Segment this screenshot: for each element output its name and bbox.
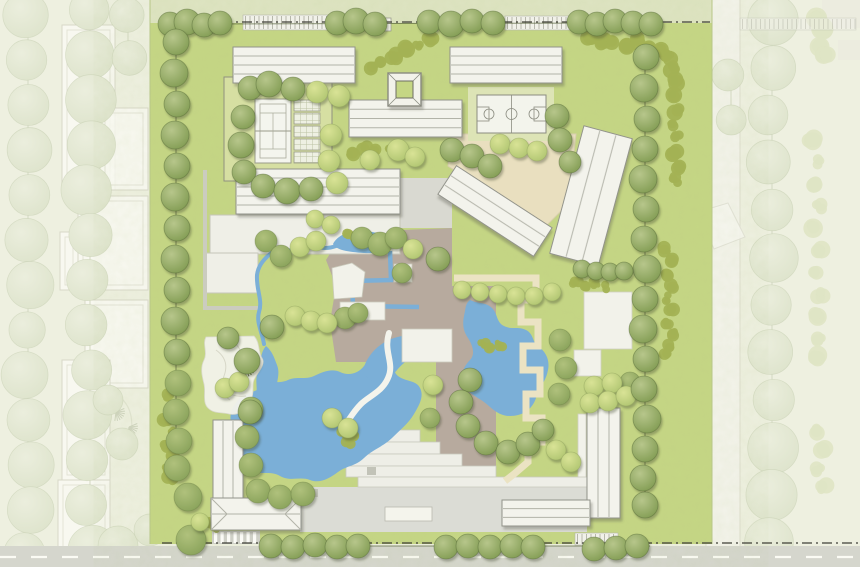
context-building	[838, 40, 860, 60]
tree	[164, 455, 190, 481]
tree	[246, 479, 270, 503]
tree	[604, 536, 628, 560]
tree	[458, 368, 482, 392]
ghost-tree	[712, 59, 744, 91]
ghost-tree	[751, 189, 793, 231]
tree	[360, 150, 380, 170]
tree	[270, 245, 292, 267]
ghost-tree	[748, 423, 799, 474]
tree	[582, 537, 606, 561]
shrub	[672, 105, 683, 116]
tree	[281, 535, 305, 559]
tree	[328, 85, 350, 107]
shrub	[659, 348, 671, 360]
tree	[163, 399, 189, 425]
tree	[238, 400, 262, 424]
ghost-tree	[750, 234, 799, 283]
pergola-trellis	[294, 152, 320, 163]
ghost-tree	[109, 0, 144, 32]
ghost-tree	[7, 261, 54, 308]
ghost-tree	[751, 46, 796, 91]
shrub	[668, 90, 677, 99]
tree	[580, 393, 600, 413]
tree	[478, 154, 502, 178]
shrub	[570, 277, 580, 287]
shrub	[814, 198, 827, 211]
tree	[633, 346, 659, 372]
ghost-tree	[112, 41, 147, 76]
shrub	[808, 351, 822, 365]
tree	[281, 77, 305, 101]
shrub	[667, 71, 683, 87]
tree	[348, 303, 368, 323]
tree	[633, 405, 661, 433]
shrub	[808, 307, 822, 321]
tree	[632, 286, 658, 312]
tree	[453, 281, 471, 299]
tree	[632, 136, 658, 162]
shrub	[674, 130, 683, 139]
tree	[228, 132, 254, 158]
ghost-tree	[8, 442, 54, 488]
building	[587, 408, 620, 518]
tree	[460, 9, 484, 33]
landscape-master-plan	[0, 0, 860, 567]
tree	[525, 287, 543, 305]
tree	[338, 418, 358, 438]
terrace-step	[358, 477, 587, 487]
tree	[317, 313, 337, 333]
shrub	[669, 171, 681, 183]
tree	[630, 74, 658, 102]
tree	[548, 128, 572, 152]
tree	[471, 283, 489, 301]
tree	[274, 178, 300, 204]
garden-pavilion	[388, 73, 421, 106]
tree	[490, 134, 510, 154]
tree	[632, 492, 658, 518]
ghost-tree	[748, 330, 793, 375]
tree	[160, 59, 188, 87]
tree	[615, 262, 633, 280]
shrub	[808, 266, 820, 278]
parking-strip	[740, 18, 856, 30]
tree	[521, 535, 545, 559]
tree	[639, 12, 663, 36]
ghost-tree	[5, 218, 48, 261]
tree	[161, 307, 189, 335]
tree	[405, 147, 425, 167]
tree	[481, 11, 505, 35]
ghost-tree	[1, 352, 48, 399]
ghost-tree	[61, 165, 111, 215]
shrub	[595, 282, 600, 287]
tree	[532, 419, 554, 441]
paved-pad	[332, 263, 365, 299]
tree	[417, 10, 441, 34]
shrub	[375, 56, 387, 68]
tree	[164, 215, 190, 241]
tree	[239, 453, 263, 477]
tree	[392, 263, 412, 283]
tree	[256, 71, 282, 97]
site-plan-svg	[0, 0, 860, 567]
tree	[489, 285, 507, 303]
tree	[559, 151, 581, 173]
shrub	[412, 41, 420, 49]
pergola-trellis	[294, 139, 320, 150]
shrub	[668, 119, 677, 128]
tree	[161, 183, 189, 211]
tree	[509, 138, 529, 158]
ghost-tree	[746, 140, 790, 184]
tree	[306, 210, 324, 228]
tree	[420, 408, 440, 428]
tree	[629, 165, 657, 193]
tree	[229, 372, 249, 392]
tree	[251, 174, 275, 198]
shrub	[664, 319, 674, 329]
shrub	[811, 332, 824, 345]
shrub	[664, 291, 672, 299]
tree	[163, 29, 189, 55]
plaza-bench	[385, 507, 432, 521]
tree	[166, 428, 192, 454]
shrub	[664, 278, 678, 292]
paved-pad	[402, 329, 452, 362]
road-bottom	[0, 546, 860, 567]
tree	[632, 436, 658, 462]
tree	[543, 283, 561, 301]
ghost-tree	[6, 40, 46, 80]
tree	[555, 357, 577, 379]
tree	[584, 376, 604, 396]
tree	[549, 329, 571, 351]
tree	[191, 513, 209, 531]
ghost-tree	[746, 469, 797, 520]
ghost-tree	[753, 379, 794, 420]
shrub	[607, 36, 617, 46]
pergola-trellis	[294, 126, 320, 137]
shrub	[816, 440, 833, 457]
tree	[434, 535, 458, 559]
tree	[561, 452, 581, 472]
tree	[478, 535, 502, 559]
shrub	[667, 329, 678, 340]
ghost-tree	[751, 285, 791, 325]
tree	[322, 216, 340, 234]
tree	[426, 247, 450, 271]
ghost-tree	[7, 399, 50, 442]
tree	[474, 431, 498, 455]
tree	[231, 105, 255, 129]
paved-pad	[584, 292, 632, 349]
tree	[500, 534, 524, 558]
ghost-tree	[8, 84, 49, 125]
podium-terrace	[206, 253, 258, 293]
shrub	[622, 42, 631, 51]
shrub	[666, 253, 679, 266]
tree	[299, 177, 323, 201]
tree	[291, 482, 315, 506]
tree	[633, 196, 659, 222]
tree	[629, 315, 657, 343]
ghost-tree	[7, 128, 52, 173]
tree	[260, 315, 284, 339]
shrub	[675, 163, 685, 173]
tree	[423, 375, 443, 395]
shrub	[805, 129, 823, 147]
building	[450, 47, 562, 83]
shrub	[663, 304, 675, 316]
tree	[303, 533, 327, 557]
shrub	[346, 151, 353, 158]
shrub	[484, 342, 495, 353]
ghost-tree	[66, 31, 114, 79]
tree	[259, 534, 283, 558]
tree	[164, 339, 190, 365]
tree	[306, 81, 328, 103]
shrub	[807, 177, 822, 192]
shrub	[494, 341, 504, 351]
tree	[208, 11, 232, 35]
tree	[165, 370, 191, 396]
tree	[320, 124, 342, 146]
tree	[456, 534, 480, 558]
tree	[449, 390, 473, 414]
tree	[268, 485, 292, 509]
tree	[545, 104, 569, 128]
shrub	[811, 466, 822, 477]
tree	[625, 534, 649, 558]
shrub	[818, 477, 834, 493]
ghost-tree	[67, 121, 115, 169]
tree	[363, 12, 387, 36]
ghost-tree	[9, 175, 50, 216]
ghost-tree	[69, 213, 112, 256]
tree	[548, 383, 570, 405]
tree	[630, 465, 656, 491]
ghost-tree	[66, 439, 108, 481]
shrub	[813, 154, 823, 164]
shrub	[602, 285, 607, 290]
ghost-tree	[65, 304, 107, 346]
shrub	[345, 439, 355, 449]
shrub	[665, 147, 680, 162]
shrub	[807, 221, 819, 233]
tree	[161, 245, 189, 273]
tree	[633, 44, 659, 70]
ghost-tree	[67, 259, 108, 300]
tree	[507, 287, 525, 305]
tree	[235, 425, 259, 449]
tree	[598, 391, 618, 411]
tree	[164, 153, 190, 179]
ghost-tree	[7, 487, 54, 534]
tree	[318, 150, 340, 172]
ghost-tree	[9, 312, 45, 348]
tree	[634, 106, 660, 132]
tree	[164, 91, 190, 117]
tree	[527, 141, 547, 161]
tree	[631, 376, 657, 402]
tree	[403, 239, 423, 259]
tree	[325, 535, 349, 559]
tree	[306, 231, 326, 251]
tree	[174, 483, 202, 511]
tree	[234, 348, 260, 374]
shrub	[811, 425, 823, 437]
tree	[217, 327, 239, 349]
tree	[346, 534, 370, 558]
ghost-tree	[66, 75, 117, 126]
shrub	[820, 47, 836, 63]
shrub	[657, 241, 670, 254]
tree	[631, 226, 657, 252]
tree	[326, 172, 348, 194]
paved-pad	[574, 350, 601, 376]
ghost-tree	[93, 385, 123, 415]
shrub	[816, 287, 825, 296]
planter	[367, 467, 376, 475]
ghost-tree	[748, 95, 788, 135]
building	[502, 500, 590, 526]
ghost-tree	[106, 428, 138, 460]
ghost-tree	[716, 105, 746, 135]
ghost-tree	[65, 484, 106, 525]
ghost-tree	[72, 350, 112, 390]
tree	[164, 277, 190, 303]
tree	[633, 255, 661, 283]
pergola-trellis	[294, 113, 320, 124]
tree	[456, 414, 480, 438]
shrub	[811, 244, 825, 258]
tree	[161, 121, 189, 149]
